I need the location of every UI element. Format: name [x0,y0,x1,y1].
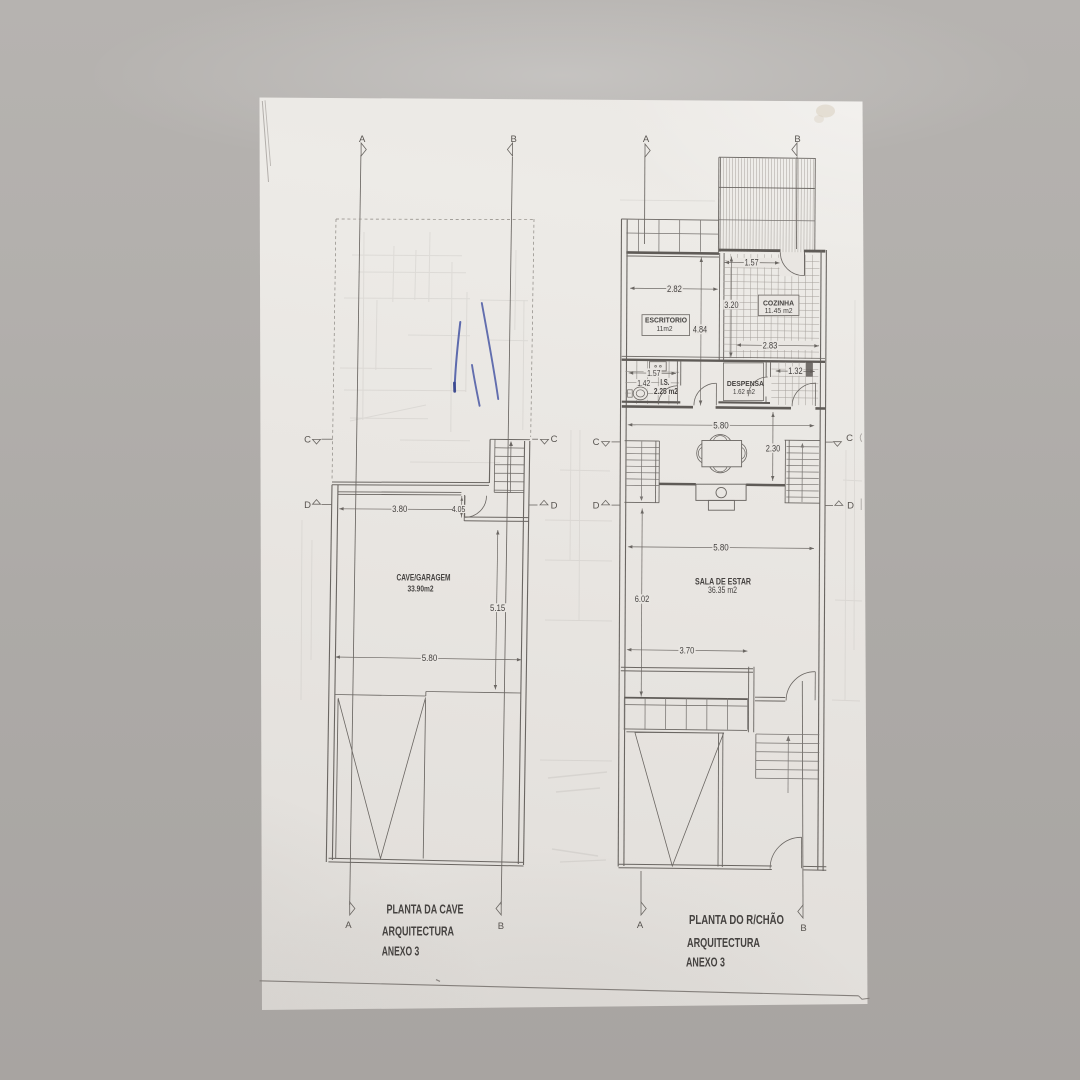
svg-text:PLANTA DA CAVE: PLANTA DA CAVE [387,902,464,917]
svg-text:5.80: 5.80 [713,542,729,552]
svg-text:11m2: 11m2 [657,326,673,333]
svg-text:D: D [304,500,311,511]
svg-text:A: A [345,920,352,931]
svg-text:D: D [847,500,854,511]
svg-text:B: B [511,134,517,145]
svg-text:36.35 m2: 36.35 m2 [708,585,737,595]
svg-text:1.57: 1.57 [745,258,759,268]
svg-text:B: B [800,923,806,934]
svg-text:B: B [498,921,504,932]
svg-text:2.83: 2.83 [763,341,778,351]
svg-text:2.25 m2: 2.25 m2 [654,387,678,396]
svg-text:4.84: 4.84 [693,324,707,334]
svg-text:6.02: 6.02 [635,594,649,604]
svg-text:A: A [643,134,650,145]
svg-text:A: A [359,134,366,145]
svg-text:COZINHA: COZINHA [763,298,795,307]
svg-text:C: C [551,434,558,445]
svg-text:ESCRITORIO: ESCRITORIO [645,316,687,325]
svg-text:B: B [794,134,800,145]
svg-text:C: C [304,435,311,446]
svg-text:1.57: 1.57 [647,369,661,378]
svg-text:1.32: 1.32 [788,366,802,376]
svg-text:5.15: 5.15 [490,603,505,613]
svg-text:C: C [846,433,853,444]
svg-text:CAVE/GARAGEM: CAVE/GARAGEM [397,572,451,582]
svg-text:11.45 m2: 11.45 m2 [765,308,793,315]
svg-text:C: C [593,437,600,448]
svg-text:I.S.: I.S. [660,378,669,387]
svg-text:3.20: 3.20 [724,300,738,310]
svg-text:3.80: 3.80 [392,504,407,514]
svg-text:5.80: 5.80 [422,653,438,663]
svg-text:PLANTA DO R/CHÃO: PLANTA DO R/CHÃO [689,912,784,927]
svg-text:ANEXO 3: ANEXO 3 [382,944,420,959]
svg-text:1.62 m2: 1.62 m2 [733,387,755,396]
svg-text:D: D [593,500,600,511]
svg-text:A: A [637,920,644,931]
svg-text:2.82: 2.82 [667,284,682,294]
svg-text:ARQUITECTURA: ARQUITECTURA [382,923,454,938]
svg-text:4.05: 4.05 [452,504,466,514]
svg-text:33.90m2: 33.90m2 [408,584,434,594]
svg-text:5.80: 5.80 [713,420,729,430]
svg-text:ARQUITECTURA: ARQUITECTURA [687,935,760,950]
svg-text:D: D [551,500,558,511]
svg-text:ANEXO 3: ANEXO 3 [686,955,725,970]
svg-text:2.30: 2.30 [766,443,780,453]
svg-text:3.70: 3.70 [680,645,695,655]
